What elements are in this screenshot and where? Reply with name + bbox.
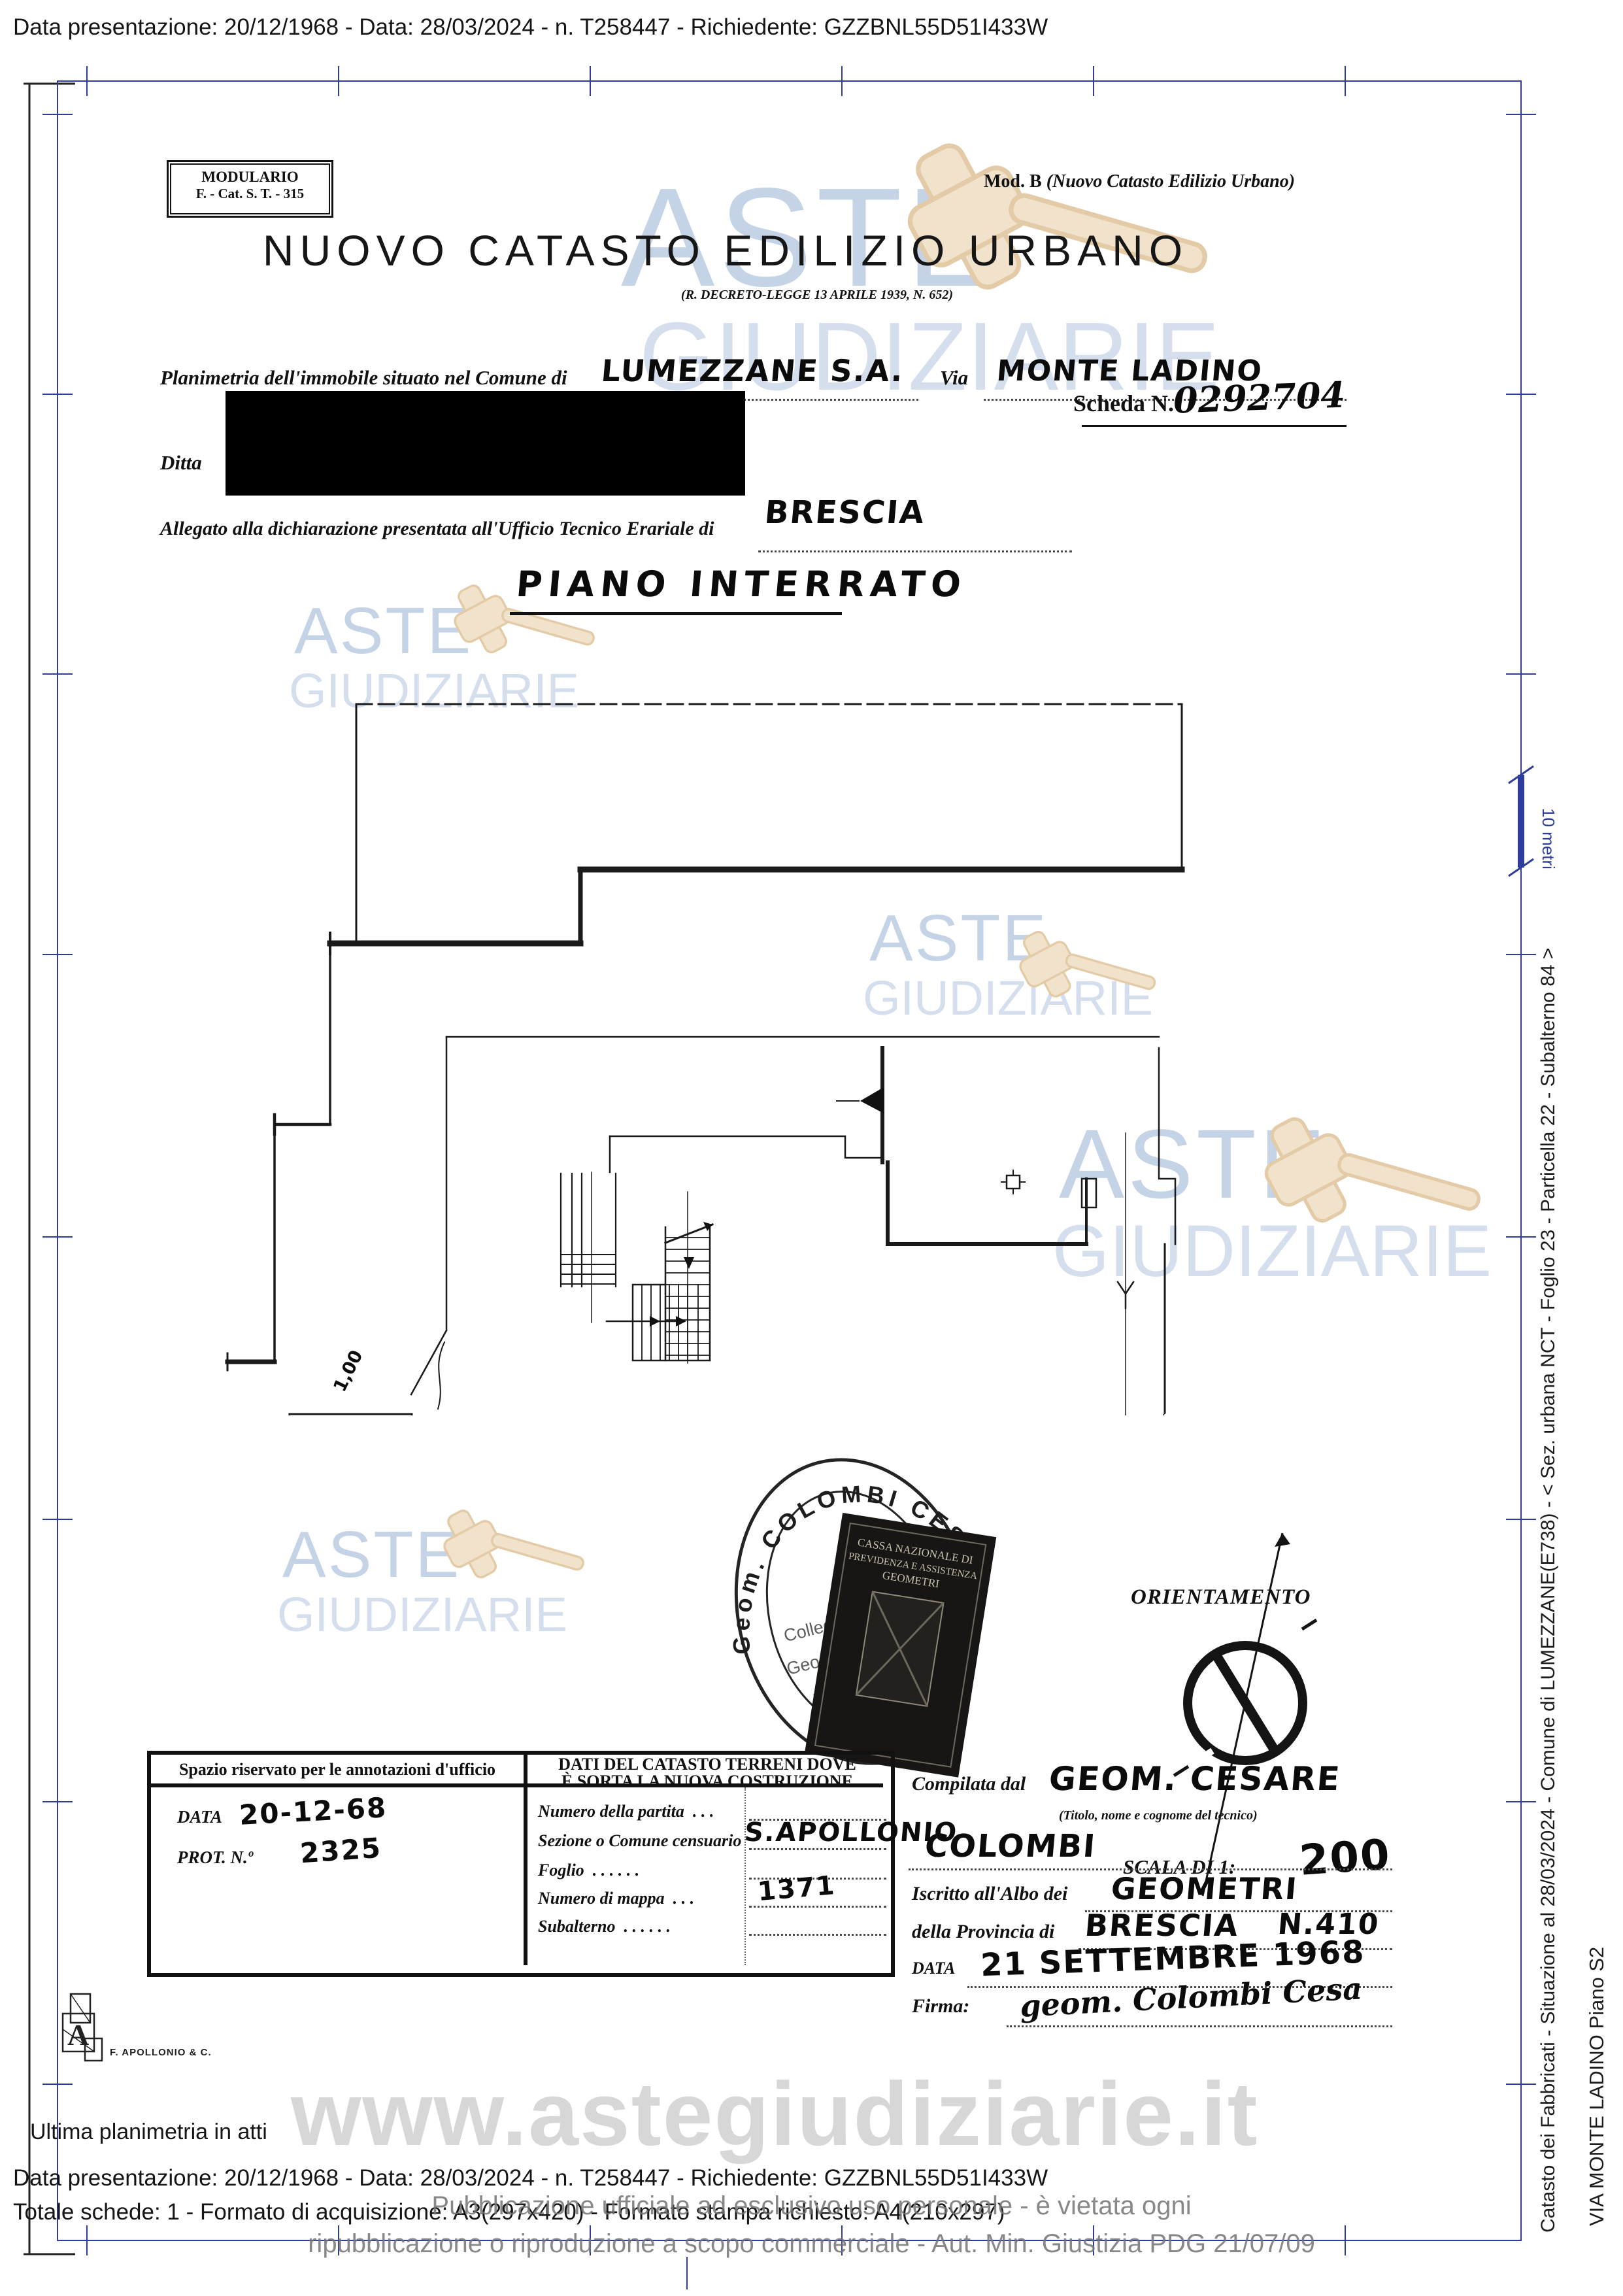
data-value: 20-12-68 — [239, 1791, 388, 1831]
prot-label: PROT. N.º — [177, 1848, 253, 1868]
table-right-header2: È SORTA LA NUOVA COSTRUZIONE — [534, 1772, 880, 1791]
row-partita: Numero della partita . . . — [538, 1802, 714, 1821]
footer-notice1: Pubblicazione ufficiale ad esclusivo uso… — [0, 2191, 1623, 2221]
row-label: Numero di mappa — [538, 1889, 665, 1908]
apollonio-logo: A F. APOLLONIO & C. — [59, 1987, 268, 2085]
footer-ultima: Ultima planimetria in atti — [30, 2119, 267, 2145]
fill-line — [749, 1919, 886, 1936]
row-sezione: Sezione o Comune censuario — [538, 1831, 741, 1851]
albo-label: Iscritto all'Albo dei — [912, 1883, 1067, 1905]
firma-label: Firma: — [912, 1995, 969, 2017]
fill-line — [749, 1891, 886, 1908]
compilata-value: GEOM. CESARE — [1047, 1760, 1342, 1798]
row-label: Sezione o Comune censuario — [538, 1831, 741, 1850]
fill-line — [749, 1834, 886, 1850]
row-mappa: Numero di mappa . . . — [538, 1889, 694, 1908]
footer-notice2: ripubblicazione o riproduzione a scopo c… — [0, 2229, 1623, 2259]
fill-line — [909, 1858, 1392, 1870]
row-label: Subalterno — [538, 1917, 616, 1936]
row-dots: . . . . . . — [624, 1917, 671, 1936]
orientamento-label: ORIENTAMENTO — [1131, 1585, 1311, 1610]
row-dots: . . . — [673, 1889, 695, 1908]
row-label: Numero della partita — [538, 1802, 684, 1821]
prot-value: 2325 — [299, 1832, 382, 1870]
office-table: Spazio riservato per le annotazioni d'uf… — [147, 1751, 895, 1977]
logo-caption: F. APOLLONIO & C. — [110, 2047, 212, 2058]
value-column-divider — [745, 1787, 746, 1965]
row-subalterno: Subalterno . . . . . . — [538, 1917, 671, 1936]
margin-address-line: VIA MONTE LADINO Piano S2 — [1585, 1947, 1609, 2226]
footer-line1: Data presentazione: 20/12/1968 - Data: 2… — [13, 2165, 1048, 2191]
row-dots: . . . . . . — [593, 1861, 640, 1880]
provincia-label: della Provincia di — [912, 1921, 1054, 1943]
scale-bar-label: 10 metri — [1538, 808, 1558, 869]
titolo-note: (Titolo, nome e cognome del tecnico) — [1059, 1808, 1258, 1823]
scanned-cadastral-document: ASTE GIUDIZIARIE ASTE GIUDIZIARIE ASTE G… — [0, 0, 1623, 2296]
data-label: DATA — [177, 1807, 222, 1827]
data-tec-label: DATA — [912, 1959, 955, 1978]
compilata-label: Compilata dal — [912, 1773, 1026, 1795]
svg-text:A: A — [67, 2018, 89, 2051]
bollo-stamp: CASSA NAZIONALE DI PREVIDENZA E ASSISTEN… — [805, 1513, 996, 1778]
row-label: Foglio — [538, 1861, 584, 1880]
row-dots: . . . — [693, 1802, 714, 1821]
table-middle-divider — [524, 1755, 527, 1965]
table-left-header: Spazio riservato per le annotazioni d'uf… — [158, 1760, 517, 1780]
fill-line — [1007, 2015, 1392, 2027]
row-foglio: Foglio . . . . . . — [538, 1861, 639, 1880]
watermark-url: www.astegiudiziarie.it — [291, 2063, 1259, 2167]
margin-cadastre-line: Catasto dei Fabbricati - Situazione al 2… — [1537, 948, 1560, 2233]
